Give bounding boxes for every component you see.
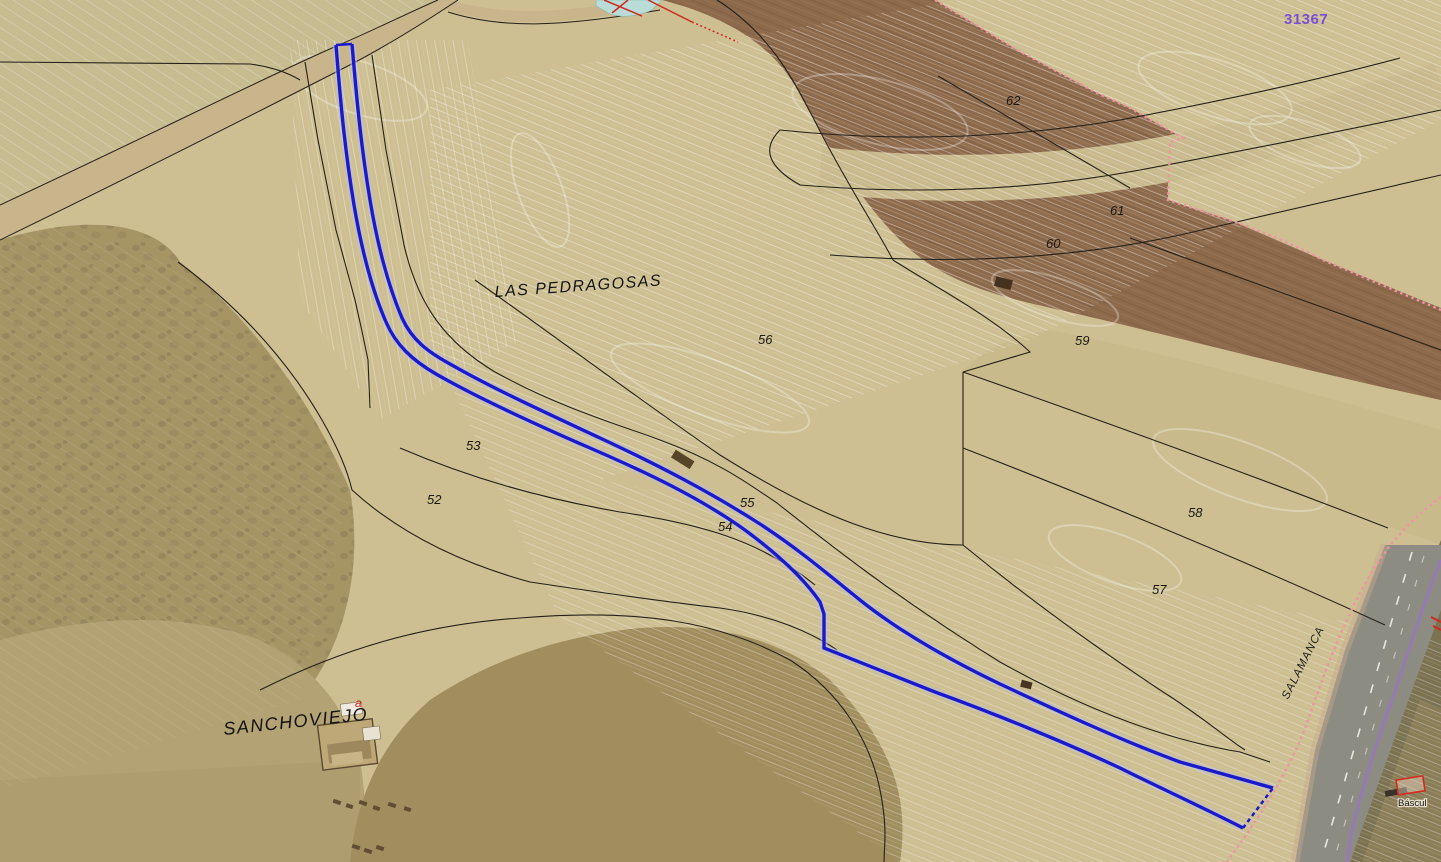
parcel-number-59: 59 [1075, 333, 1089, 348]
parcel-number-57: 57 [1152, 582, 1167, 597]
subparcel-letter-a: a [355, 696, 362, 710]
parcel-number-62: 62 [1006, 93, 1021, 108]
parcel-number-58: 58 [1188, 505, 1203, 520]
bascula-red-outline [1396, 776, 1425, 795]
white-roof-2 [362, 726, 380, 741]
sheet-number: 31367 [1284, 11, 1328, 28]
parcel-number-54: 54 [718, 519, 732, 534]
parcel-number-52: 52 [427, 492, 442, 507]
parcel-number-56: 56 [758, 332, 773, 347]
parcel-number-60: 60 [1046, 236, 1061, 251]
map-viewport[interactable]: 31367 LAS PEDRAGOSAS SANCHOVIEJO SALAMAN… [0, 0, 1441, 862]
parcel-number-53: 53 [466, 438, 481, 453]
building-label-bascula: Báscul [1398, 798, 1427, 809]
parcel-number-61: 61 [1110, 203, 1124, 218]
parcel-number-55: 55 [740, 495, 755, 510]
aerial-map-canvas[interactable]: 31367 LAS PEDRAGOSAS SANCHOVIEJO SALAMAN… [0, 0, 1441, 862]
